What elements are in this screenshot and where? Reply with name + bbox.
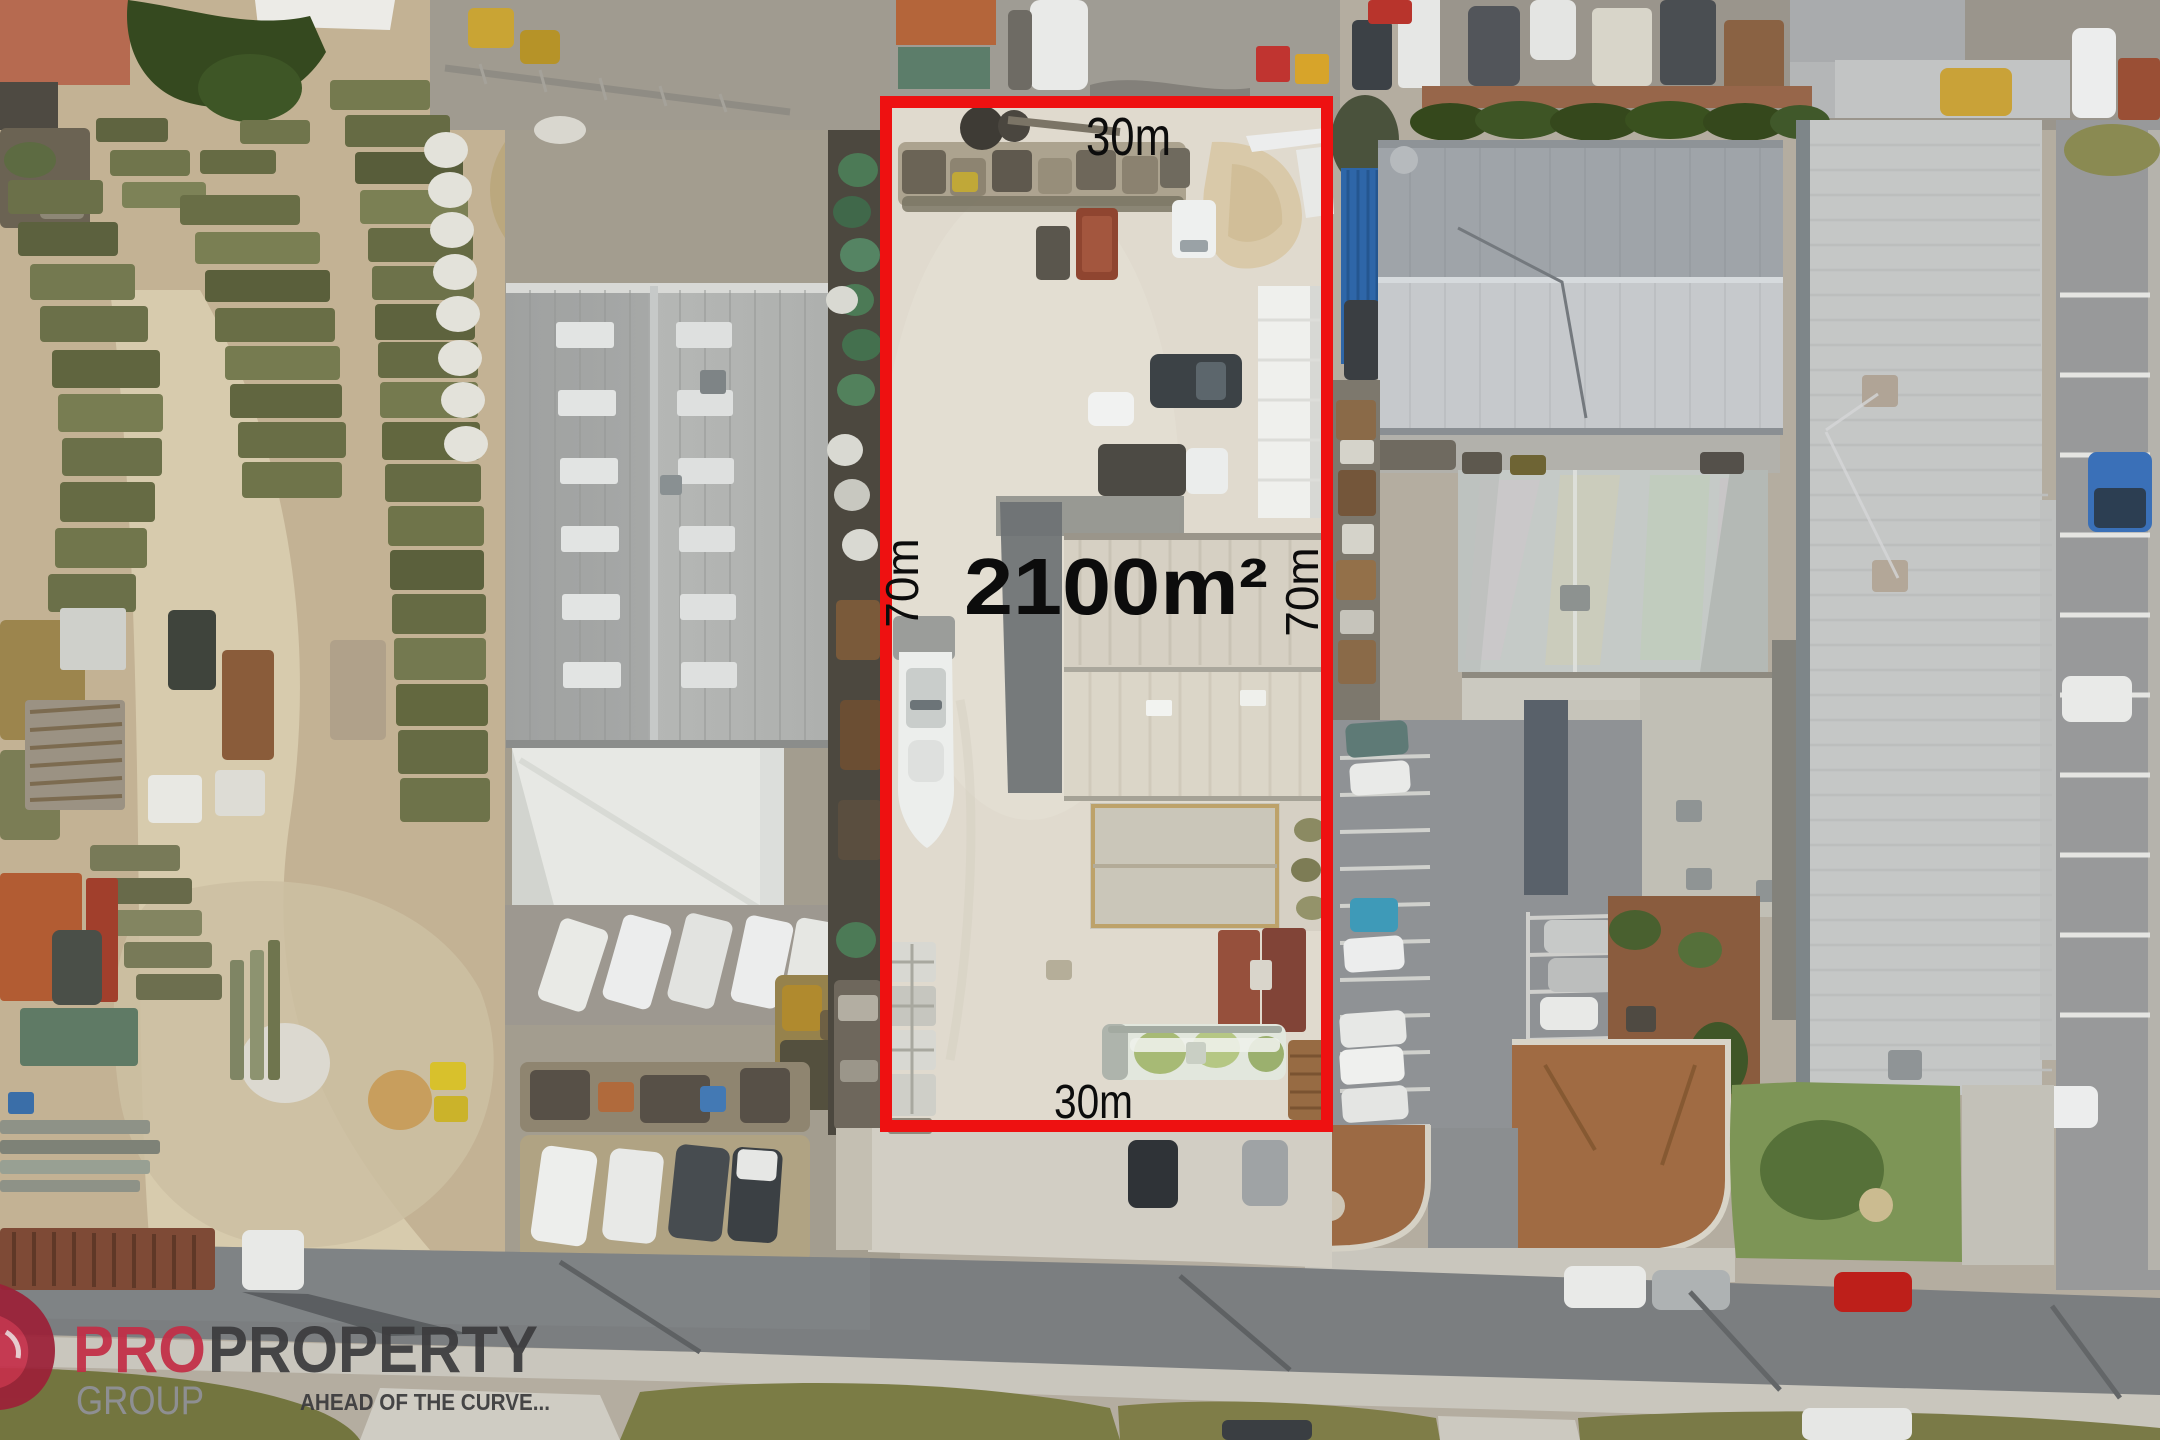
svg-text:30m: 30m	[1054, 1076, 1133, 1129]
svg-text:70m: 70m	[1276, 547, 1328, 636]
svg-text:2100m²: 2100m²	[964, 542, 1268, 631]
svg-text:AHEAD OF THE CURVE...: AHEAD OF THE CURVE...	[300, 1389, 550, 1415]
svg-text:PROPERTY: PROPERTY	[208, 1312, 538, 1386]
svg-text:PRO: PRO	[73, 1312, 206, 1386]
svg-text:GROUP: GROUP	[76, 1379, 204, 1423]
svg-text:30m: 30m	[1086, 107, 1171, 167]
svg-text:70m: 70m	[876, 538, 928, 627]
